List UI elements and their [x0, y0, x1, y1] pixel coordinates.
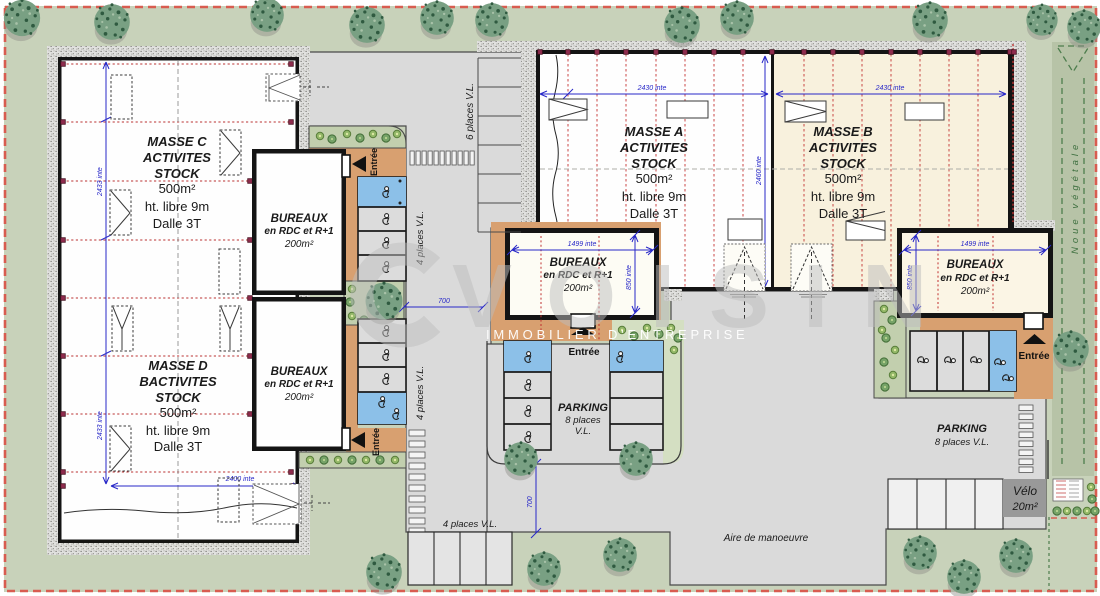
svg-text:500m²: 500m²	[159, 181, 197, 196]
svg-text:STOCK: STOCK	[631, 156, 678, 171]
svg-text:500m²: 500m²	[160, 405, 198, 420]
svg-text:8 places: 8 places	[565, 415, 601, 426]
svg-text:6 places V.L.: 6 places V.L.	[465, 83, 476, 140]
svg-text:Dalle 3T: Dalle 3T	[819, 206, 867, 221]
svg-text:8 places V.L.: 8 places V.L.	[935, 437, 989, 448]
svg-text:4 places V.L.: 4 places V.L.	[415, 366, 426, 420]
svg-text:200m²: 200m²	[284, 392, 314, 403]
svg-text:Entrée: Entrée	[369, 148, 379, 176]
svg-text:ht. libre 9m: ht. libre 9m	[146, 423, 210, 438]
svg-text:1499 inte: 1499 inte	[961, 241, 990, 248]
svg-text:500m²: 500m²	[825, 171, 863, 186]
svg-text:PARKING: PARKING	[558, 402, 608, 414]
svg-text:BUREAUX: BUREAUX	[271, 213, 329, 225]
svg-text:200m²: 200m²	[284, 239, 314, 250]
svg-text:2460 inte: 2460 inte	[756, 156, 763, 186]
svg-text:4 places V.L.: 4 places V.L.	[443, 519, 497, 530]
svg-text:Entrée: Entrée	[1018, 351, 1050, 362]
svg-text:en RDC et R+1: en RDC et R+1	[264, 379, 334, 390]
svg-text:ACTIVITES: ACTIVITES	[808, 140, 877, 155]
svg-text:MASSE D: MASSE D	[148, 358, 208, 373]
svg-text:Dalle 3T: Dalle 3T	[153, 216, 201, 231]
svg-text:IMMOBILIER D'ENTREPRISE: IMMOBILIER D'ENTREPRISE	[486, 327, 749, 342]
svg-text:2433 inte: 2433 inte	[97, 411, 104, 441]
svg-text:Noue végétale: Noue végétale	[1070, 141, 1081, 254]
svg-text:MASSE B: MASSE B	[813, 124, 872, 139]
svg-text:2430 inte: 2430 inte	[875, 85, 905, 92]
svg-text:MASSE A: MASSE A	[625, 124, 684, 139]
svg-text:STOCK: STOCK	[154, 166, 201, 181]
svg-text:en RDC et R+1: en RDC et R+1	[264, 226, 334, 237]
svg-text:ACTIVITES: ACTIVITES	[142, 150, 211, 165]
svg-text:Vélo: Vélo	[1013, 484, 1037, 498]
svg-text:500m²: 500m²	[636, 171, 674, 186]
svg-text:STOCK: STOCK	[820, 156, 867, 171]
svg-text:V.L.: V.L.	[575, 426, 591, 437]
svg-text:ACTIVITES: ACTIVITES	[619, 140, 688, 155]
svg-text:700: 700	[527, 496, 534, 508]
svg-text:STOCK: STOCK	[155, 390, 202, 405]
svg-text:BUREAUX: BUREAUX	[271, 366, 329, 378]
svg-text:2400 inte: 2400 inte	[225, 476, 255, 483]
svg-text:Entrée: Entrée	[371, 428, 381, 456]
svg-text:ht. libre 9m: ht. libre 9m	[145, 199, 209, 214]
svg-text:MASSE C: MASSE C	[147, 134, 207, 149]
svg-text:ht. libre 9m: ht. libre 9m	[811, 189, 875, 204]
svg-text:2433 inte: 2433 inte	[97, 167, 104, 197]
svg-text:PARKING: PARKING	[937, 423, 987, 435]
svg-text:200m²: 200m²	[960, 286, 990, 297]
svg-text:20m²: 20m²	[1011, 501, 1037, 513]
svg-text:2430 inte: 2430 inte	[637, 85, 667, 92]
svg-text:Entrée: Entrée	[568, 347, 600, 358]
svg-text:700: 700	[438, 298, 450, 305]
svg-text:Aire de manoeuvre: Aire de manoeuvre	[723, 533, 809, 544]
svg-text:Dalle 3T: Dalle 3T	[630, 206, 678, 221]
svg-text:ht. libre 9m: ht. libre 9m	[622, 189, 686, 204]
svg-text:Dalle 3T: Dalle 3T	[154, 439, 202, 454]
svg-text:BACTIVITES: BACTIVITES	[139, 374, 217, 389]
